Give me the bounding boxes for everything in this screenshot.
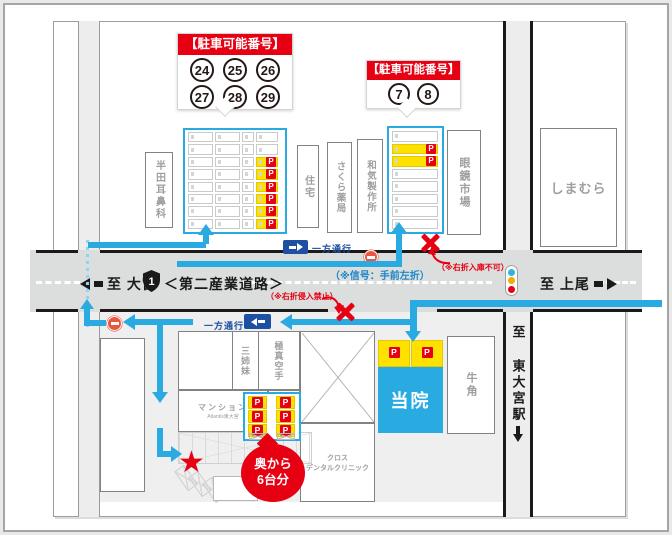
down-arrow-icon [513,434,523,442]
station-road-upper [503,21,533,250]
p-badge: P [280,397,291,408]
parking-stall [392,131,438,142]
parking-stall [242,144,254,154]
parking-stall [242,157,254,167]
parking-stall [256,132,278,142]
back-parking-bubble: 奥から 6台分 [241,444,305,502]
parking-stall [215,132,240,142]
parking-column [188,132,213,229]
route-line [135,319,193,325]
parking-lot-northwest-stalls: PPPPPP [188,132,283,229]
clinic-building: 当院 [378,367,443,433]
parking-column: PPPPPP [256,132,278,229]
road-edge [533,309,642,312]
parking-stall [188,182,213,192]
parking-stall [215,157,240,167]
one-way-label-south: 一方通行 [204,319,244,332]
parking-stall [242,194,254,204]
parking-stall-reserved: P [256,206,278,216]
bubble-title: 【駐車可能番号】 [178,34,292,55]
p-badge: P [389,347,400,358]
parking-stall-reserved: P [256,194,278,204]
parking-stall [242,169,254,179]
side-road-west-lower [78,312,100,517]
building-megane-ichiba: 眼鏡市場 [447,130,481,235]
to-ageo-label: 至 上尾 [540,274,617,294]
p-badge: P [266,169,276,179]
parking-stall-reserved: P [256,169,278,179]
building-waki-factory: 和気製作所 [357,139,383,233]
building-gyukaku: 牛角 [447,336,495,434]
no-entry-icon-south [107,316,122,331]
p-badge: P [280,411,291,422]
parking-stall [215,194,240,204]
destination-star-icon: ★ [178,448,205,478]
p-badge: P [266,206,276,216]
right-arrow-icon [607,278,617,290]
building-jutaku: 住宅 [297,145,319,228]
parking-stall-reserved: P [256,219,278,229]
number-row: 27 28 29 [178,85,292,109]
to-station-label: 至 東大宮駅 [504,325,532,442]
parking-stall [242,182,254,192]
stall-number: 8 [417,83,439,105]
p-badge: P [426,144,436,154]
parking-stall [215,206,240,216]
building-sanshimai: 三姉妹 [232,331,258,390]
route-arrow-down [405,331,421,342]
road-edge [36,309,78,312]
route-1-shield-icon: 1 [142,270,161,293]
parking-stall [242,206,254,216]
one-way-label-north: 一方通行 [312,242,352,255]
p-badge: P [266,194,276,204]
to-ageo-text: 至 上尾 [540,274,590,294]
p-badge: P [252,411,263,422]
left-arrow-icon [94,281,103,287]
parking-stall [188,144,213,154]
parking-stall [188,132,213,142]
parking-stall [242,132,254,142]
parking-lot-northeast-stalls: PP [392,131,439,229]
building-sakura-pharmacy: さくら薬局 [327,142,352,233]
right-arrow-icon [594,281,603,287]
clinic-back-parking-stalls: PPPPPP [248,396,295,432]
building-handa: 半田耳鼻科 [145,152,173,228]
one-way-sign-east-icon [283,240,308,254]
parking-stall [188,169,213,179]
cross-lines [302,333,374,422]
stall-number: 24 [190,58,214,82]
down-arrow-icon [516,426,520,434]
parking-stall [256,144,278,154]
parking-column: PP [392,131,438,229]
parking-stall [392,181,438,192]
stall-number: 25 [223,58,247,82]
center-line [36,281,80,284]
parking-column: PPP [276,396,295,432]
route-line-main [414,300,662,307]
building-unlabeled [178,331,232,390]
curved-arrow-icon [320,294,344,314]
stall-number: 29 [256,85,280,109]
south-building-row: 三姉妹 極真空手 [178,331,300,390]
clinic-front-parking-stall: P [378,340,410,367]
route-arrow-up [198,224,214,235]
parking-stall [215,219,240,229]
route-line [84,320,106,326]
parking-stall-reserved: P [392,156,438,167]
stall-number: 27 [190,85,214,109]
building-kyokushin-karate: 極真空手 [258,331,300,390]
p-badge: P [252,397,263,408]
one-way-sign-west-icon [244,314,271,329]
side-road-west-upper [78,21,100,250]
parking-column: PPP [248,396,267,432]
parking-stall [215,169,240,179]
note-no-right-entry: （※右折入庫不可） [437,262,509,273]
number-row: 7 8 [367,83,460,105]
building-shimamura: しまむら [540,128,617,247]
route-arrow-left [280,314,292,330]
parking-column [242,132,254,229]
note-signal: （※信号：手前左折） [330,267,430,282]
p-badge: P [422,347,433,358]
parking-stall-reserved: P [276,410,295,423]
p-badge: P [266,182,276,192]
route-line [157,322,163,392]
road-edge [36,250,78,253]
parking-stall [215,182,240,192]
parking-stall [188,206,213,216]
vacant-lot [300,331,375,423]
parking-stall-reserved: P [248,396,267,409]
number-row: 24 25 26 [178,58,292,82]
parking-stall-reserved: P [276,396,295,409]
p-badge: P [426,156,436,166]
parking-stall [188,194,213,204]
p-badge: P [266,219,276,229]
route-line [203,234,209,244]
bubble-title: 【駐車可能番号】 [367,61,460,80]
parking-stall [188,157,213,167]
route-arrow-up [391,222,407,233]
parking-stall-reserved: P [256,182,278,192]
route-line [396,233,402,267]
parking-stall-reserved: P [392,144,438,155]
road-edge [437,309,503,312]
parking-column [215,132,240,229]
parking-stall-reserved: P [248,410,267,423]
parking-stall [392,169,438,180]
blocked-stall [277,433,295,440]
route-arrow-up [80,299,94,309]
svg-text:1: 1 [148,276,154,288]
parking-stall [242,219,254,229]
parking-numbers-bubble-left: 【駐車可能番号】 24 25 26 27 28 29 [177,33,293,110]
stall-number: 26 [256,58,280,82]
building-unlabeled [100,338,145,492]
road-edge [100,309,328,312]
p-badge: P [266,157,276,167]
route-arrow-down [152,392,168,403]
parking-stall-reserved: P [256,157,278,167]
route-line [410,300,417,332]
road-edge [533,250,642,253]
route-line [88,242,206,248]
parking-stall [392,194,438,205]
clinic-front-parking-stall: P [411,340,443,367]
parking-numbers-bubble-right: 【駐車可能番号】 7 8 [366,60,461,109]
route-arrow-left [123,314,135,330]
parking-stall [392,206,438,217]
parking-stall [215,144,240,154]
access-map: 至 大宮 1 ＜第二産業道路＞ 至 上尾 半田耳鼻科 PPPPPP 住宅 さくら… [0,0,672,535]
